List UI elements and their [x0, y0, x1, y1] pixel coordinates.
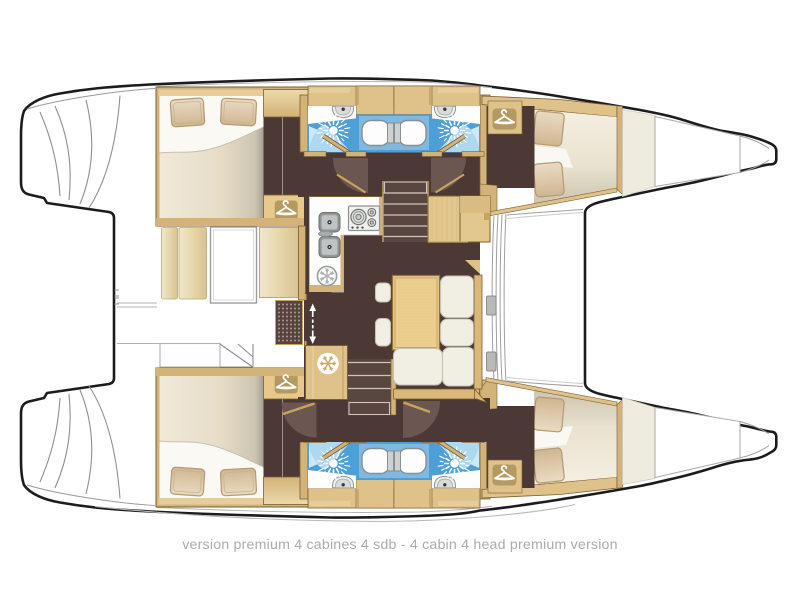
- svg-text:version premium 4 cabines 4 sd: version premium 4 cabines 4 sdb - 4 cabi…: [182, 537, 617, 553]
